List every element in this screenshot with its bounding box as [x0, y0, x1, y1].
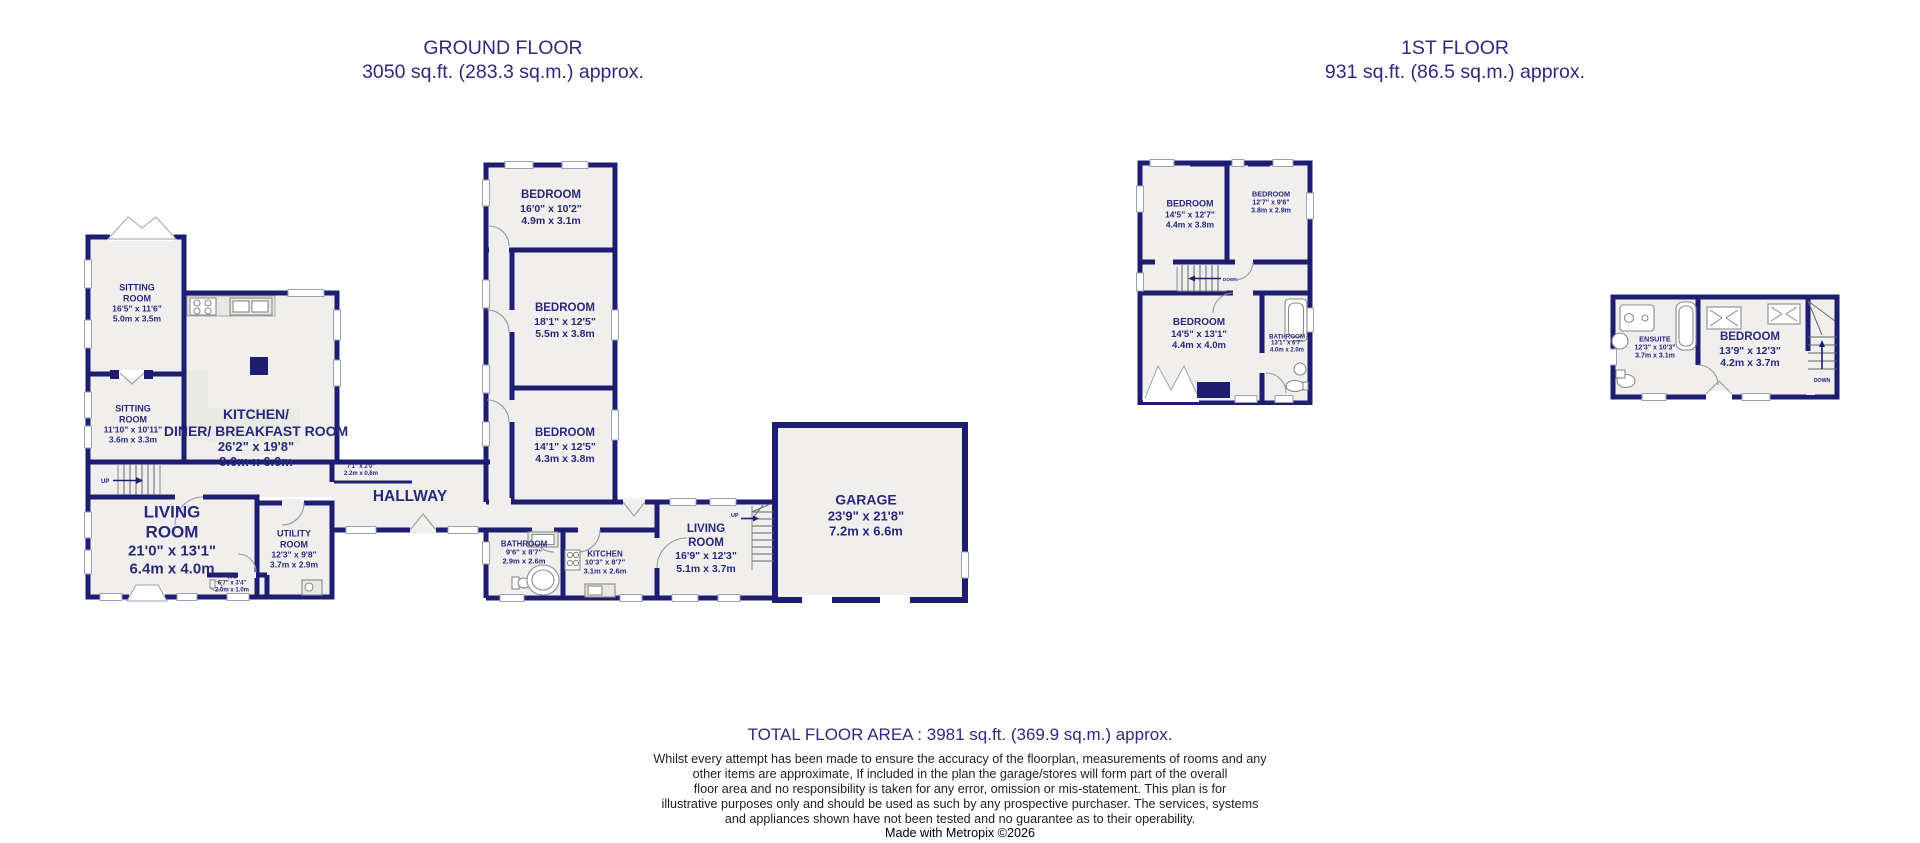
room-label-wc: WC 6'7" x 3'4" 2.0m x 1.0m — [215, 573, 249, 594]
disclaimer-line: Whilst every attempt has been made to en… — [560, 752, 1360, 767]
ground-floor-name: GROUND FLOOR — [283, 36, 723, 60]
disclaimer-text: Whilst every attempt has been made to en… — [560, 752, 1360, 827]
first-sink-icon — [1294, 363, 1306, 375]
room-label-ensuite: ENSUITE 12'3" x 10'3" 3.7m x 3.1m — [1634, 335, 1675, 360]
room-label-first-bedroom-tl: BEDROOM 14'5" x 12'7" 4.4m x 3.8m — [1165, 199, 1215, 230]
shower-icon — [1620, 305, 1654, 331]
room-label-cupboard: 7'1" x 2'0" 2.2m x 0.6m — [344, 464, 378, 478]
room-label-sitting-room-1: SITTING ROOM 16'5" x 11'6" 5.0m x 3.5m — [112, 282, 161, 323]
room-label-living-room-2: LIVING ROOM 16'9" x 12'3" 5.1m x 3.7m — [675, 523, 737, 575]
bathtub-icon — [527, 565, 559, 595]
room-label-utility: UTILITY ROOM 12'3" x 9'8" 3.7m x 2.9m — [270, 528, 318, 569]
kitchen-island — [250, 357, 268, 375]
room-label-kitchen-2: KITCHEN 10'3" x 8'7" 3.1m x 2.6m — [583, 549, 626, 576]
disclaimer-line: other items are approximate, If included… — [560, 767, 1360, 782]
stairs-up2-label: UP — [731, 513, 739, 519]
room-label-bedroom-3: BEDROOM 14'1" x 12'5" 4.3m x 3.8m — [534, 427, 596, 465]
disclaimer-line: illustrative purposes only and should be… — [560, 797, 1360, 812]
kitchen2-sink-icon — [585, 584, 615, 597]
utility-washer-icon — [302, 580, 322, 595]
annex-bath-icon — [1676, 302, 1696, 350]
kitchen-sink-icon — [230, 298, 272, 315]
stairs-annex-down-label: DOWN — [1814, 378, 1831, 384]
room-label-bathroom-ground: BATHROOM 9'6" x 8'7" 2.9m x 2.6m — [501, 539, 548, 566]
hob-icon — [190, 298, 216, 315]
ground-floor-title: GROUND FLOOR 3050 sq.ft. (283.3 sq.m.) a… — [283, 36, 723, 84]
total-floor-area: TOTAL FLOOR AREA : 3981 sq.ft. (369.9 sq… — [640, 725, 1280, 745]
ground-floor-area: 3050 sq.ft. (283.3 sq.m.) approx. — [283, 60, 723, 84]
room-label-first-bedroom-tr: BEDROOM 12'7" x 9'6" 3.8m x 2.9m — [1251, 190, 1291, 215]
floorplan-page: GROUND FLOOR 3050 sq.ft. (283.3 sq.m.) a… — [0, 0, 1920, 843]
room-label-first-bathroom: BATHROOM 13'1" x 6'7" 4.0m x 2.0m — [1269, 333, 1305, 354]
room-label-living-room-1: LIVING ROOM 21'0" x 13'1" 6.4m x 4.0m — [128, 502, 216, 577]
room-label-garage: GARAGE 23'9" x 21'8" 7.2m x 6.6m — [828, 491, 904, 538]
disclaimer-line: floor area and no responsibility is take… — [560, 782, 1360, 797]
room-label-sitting-room-2: SITTING ROOM 11'10" x 10'11" 3.6m x 3.3m — [104, 403, 162, 444]
first-toilet-icon — [1286, 381, 1308, 392]
stairs-up-label: UP — [101, 479, 109, 485]
metropix-credit: Made with Metropix ©2026 — [560, 826, 1360, 840]
room-label-hallway: HALLWAY — [373, 488, 447, 506]
room-label-bedroom-1: BEDROOM 16'0" x 10'2" 4.9m x 3.1m — [520, 189, 582, 227]
disclaimer-line: and appliances shown have not been teste… — [560, 812, 1360, 827]
room-label-bedroom-2: BEDROOM 18'1" x 12'5" 5.5m x 3.8m — [534, 302, 596, 340]
bay-window-sitting — [108, 217, 176, 241]
first-floor-area: 931 sq.ft. (86.5 sq.m.) approx. — [1235, 60, 1675, 84]
room-label-first-bedroom-b: BEDROOM 14'5" x 13'1" 4.4m x 4.0m — [1171, 317, 1227, 351]
room-label-kitchen-diner: KITCHEN/ DINER/ BREAKFAST ROOM 26'2" x 1… — [164, 406, 348, 470]
room-label-annex-bedroom: BEDROOM 13'9" x 12'3" 4.2m x 3.7m — [1719, 331, 1781, 369]
annex-sink-icon — [1612, 333, 1628, 349]
chimney-block — [1197, 382, 1230, 398]
first-floor-name: 1ST FLOOR — [1235, 36, 1675, 60]
kitchen2-hob-icon — [565, 550, 580, 570]
first-floor-title: 1ST FLOOR 931 sq.ft. (86.5 sq.m.) approx… — [1235, 36, 1675, 84]
